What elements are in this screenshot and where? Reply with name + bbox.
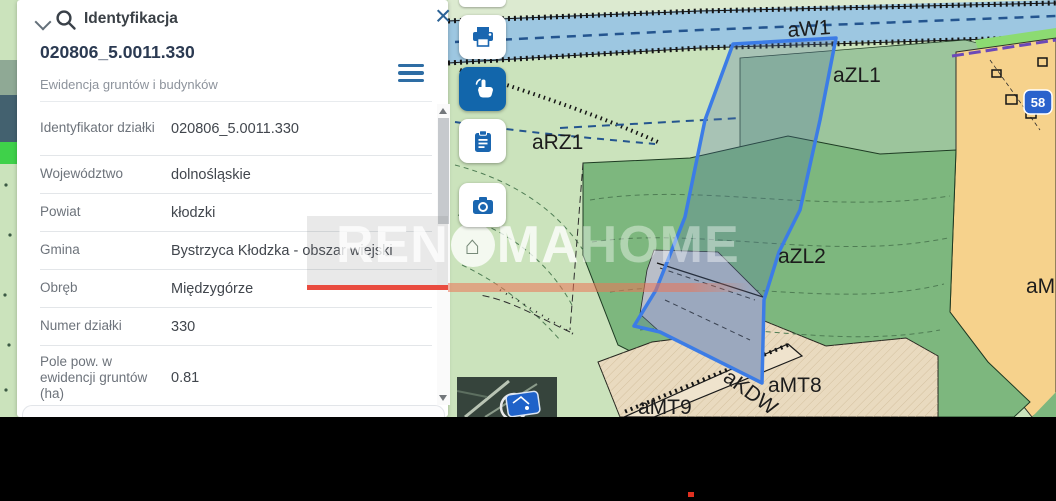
panel-title: Identyfikacja [84, 10, 178, 28]
field-label: Powiat [40, 204, 164, 220]
field-label: Pole pow. w ewidencji gruntów (ha) [40, 354, 164, 403]
copy-results-button[interactable] [459, 119, 506, 163]
scroll-down-icon[interactable] [439, 395, 447, 401]
basemap-icon [506, 391, 541, 417]
chevron-down-icon[interactable] [35, 14, 52, 31]
zone-label-aZL2: aZL2 [778, 245, 826, 268]
menu-icon[interactable] [398, 64, 424, 86]
table-row: Pole pow. w ewidencji gruntów (ha) 0.81 [40, 346, 432, 411]
print-button[interactable] [459, 15, 506, 59]
zone-label-aMR: aMR [1026, 275, 1056, 298]
field-label: Województwo [40, 166, 164, 182]
zone-label-aW1: aW1 [787, 16, 832, 42]
camera-icon [471, 195, 495, 216]
field-value: 330 [171, 319, 195, 335]
road-shield-58: 58 [1024, 90, 1052, 114]
field-value: 020806_5.0011.330 [171, 121, 299, 137]
zone-label-aMT9: aMT9 [638, 396, 692, 417]
field-value: dolnośląskie [171, 167, 251, 183]
watermark-text-solid: REN [336, 219, 449, 271]
clipboard-icon [472, 130, 494, 153]
toolbar-button-partial[interactable] [459, 0, 506, 7]
watermark-underline-map [448, 283, 750, 292]
watermark-text-solid: MA [497, 219, 580, 271]
zone-label-aRZ1: aRZ1 [532, 131, 583, 154]
field-value: 0.81 [171, 370, 199, 386]
field-label: Obręb [40, 280, 164, 296]
pointer-hand-icon [471, 77, 495, 101]
watermark-underline [307, 285, 448, 290]
field-value: kłodzki [171, 205, 215, 221]
screenshot-button[interactable] [459, 183, 506, 227]
table-row: Numer działki 330 [40, 308, 432, 346]
svg-text:58: 58 [1031, 95, 1045, 110]
field-label: Numer działki [40, 318, 164, 334]
zone-label-aZL1: aZL1 [833, 64, 881, 87]
printer-icon [471, 26, 495, 48]
identify-panel: Identyfikacja × 020806_5.0011.330 Ewiden… [17, 0, 448, 417]
table-row: Województwo dolnośląskie [40, 156, 432, 194]
result-parcel-id: 020806_5.0011.330 [40, 42, 195, 63]
close-icon[interactable]: × [435, 2, 451, 30]
red-marker [688, 492, 694, 497]
identify-tool-button[interactable] [459, 67, 506, 111]
zone-label-aMT8: aMT8 [768, 374, 822, 397]
overview-minimap[interactable] [457, 377, 557, 417]
watermark-logo: REN⌂MAHOME [336, 219, 740, 271]
field-label: Identyfikator działki [40, 120, 164, 136]
scroll-up-icon[interactable] [439, 108, 447, 114]
scrollbar-thumb[interactable] [438, 118, 449, 224]
field-value: Międzygórze [171, 281, 253, 297]
field-label: Gmina [40, 242, 164, 258]
search-icon [55, 9, 77, 31]
geoportal-app: 58 aW1 aZL1 aRZ1 aZL2 aMT8 aMT9 aKDW aMR… [0, 0, 1056, 501]
house-icon: ⌂ [451, 223, 495, 267]
result-source: Ewidencja gruntów i budynków [40, 77, 218, 92]
letterbox-bottom [0, 417, 1056, 501]
table-row: Identyfikator działki 020806_5.0011.330 [40, 102, 432, 156]
watermark-text-outline: HOME [580, 219, 740, 271]
